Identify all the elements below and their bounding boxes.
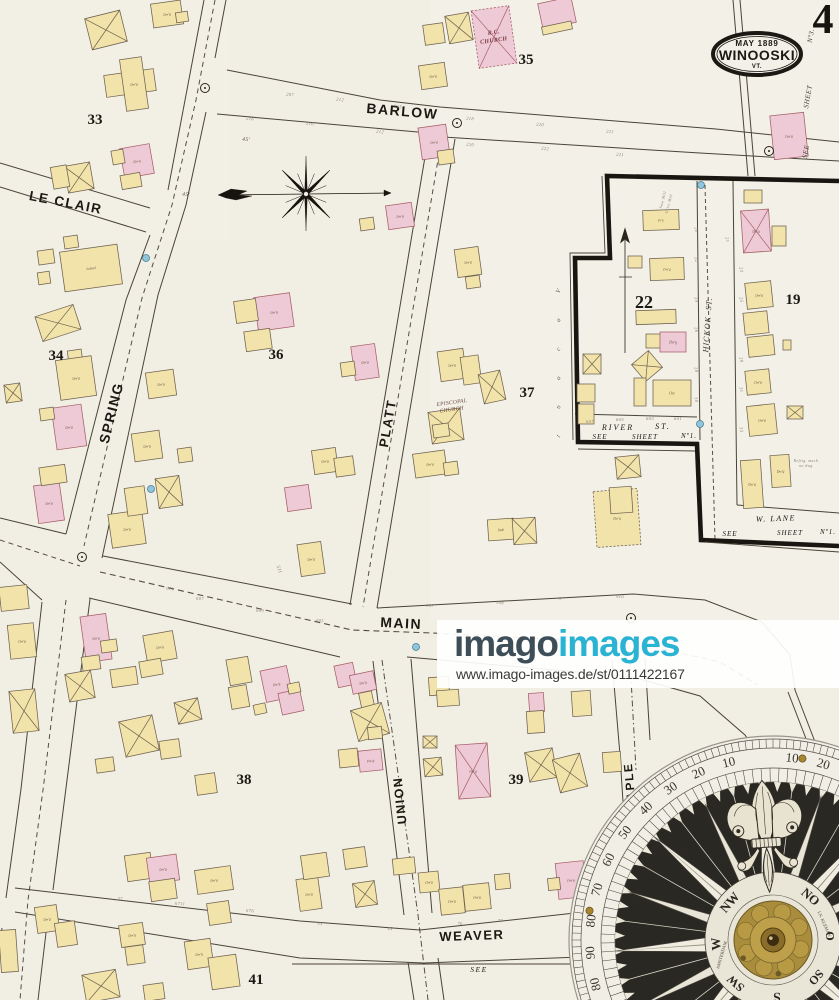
svg-text:212: 212 (336, 97, 345, 103)
svg-text:222: 222 (541, 146, 550, 152)
svg-text:676: 676 (246, 908, 255, 913)
svg-text:216: 216 (246, 116, 255, 122)
svg-text:Dw'g: Dw'g (668, 341, 677, 345)
svg-text:WEAVER: WEAVER (439, 927, 505, 944)
svg-text:605: 605 (616, 417, 624, 422)
svg-text:611: 611 (166, 586, 174, 592)
svg-text:80: 80 (582, 914, 598, 928)
svg-text:77: 77 (497, 918, 503, 923)
svg-text:SHEET: SHEET (632, 433, 658, 441)
svg-text:www.imago-images.de/st/0111422: www.imago-images.de/st/0111422167 (455, 666, 685, 682)
svg-text:210: 210 (306, 121, 315, 127)
svg-text:VT.: VT. (752, 64, 762, 70)
svg-text:220: 220 (536, 122, 545, 128)
svg-text:MAIN: MAIN (380, 614, 423, 632)
svg-text:609: 609 (256, 608, 265, 614)
svg-text:S: S (773, 990, 781, 1000)
svg-text:33: 33 (317, 921, 323, 926)
svg-text:207: 207 (286, 92, 295, 98)
svg-text:34: 34 (49, 348, 65, 364)
svg-text:45: 45 (387, 926, 393, 931)
svg-text:38: 38 (237, 772, 252, 788)
svg-text:212: 212 (376, 129, 385, 135)
svg-text:218: 218 (466, 116, 475, 122)
svg-text:31: 31 (739, 387, 745, 393)
svg-text:41: 41 (249, 972, 264, 988)
svg-text:908: 908 (496, 600, 505, 606)
svg-text:603: 603 (646, 416, 654, 421)
svg-text:WINOOSKI: WINOOSKI (719, 47, 795, 63)
svg-text:SEE: SEE (470, 965, 487, 974)
svg-text:37: 37 (117, 896, 123, 901)
svg-text:Nº1.: Nº1. (680, 432, 697, 440)
svg-text:45': 45' (242, 136, 251, 144)
svg-text:605: 605 (316, 618, 325, 624)
svg-text:Dw'g: Dw'g (776, 469, 785, 474)
svg-text:90: 90 (582, 946, 598, 960)
svg-text:907: 907 (426, 603, 435, 609)
svg-text:220: 220 (466, 142, 475, 148)
svg-text:601: 601 (674, 416, 682, 421)
svg-text:SEE: SEE (592, 433, 607, 441)
svg-text:221: 221 (606, 129, 614, 135)
svg-text:33: 33 (88, 112, 103, 128)
svg-text:45': 45' (182, 191, 191, 199)
svg-text:76: 76 (457, 921, 463, 926)
svg-text:no dwg: no dwg (799, 464, 812, 468)
svg-text:Pr'y: Pr'y (657, 218, 664, 222)
svg-text:21: 21 (725, 237, 731, 243)
svg-text:Stab: Stab (498, 528, 505, 532)
svg-text:10: 10 (785, 749, 799, 765)
svg-text:Ore: Ore (669, 392, 675, 396)
svg-text:4: 4 (813, 0, 834, 43)
svg-text:imagoimages: imagoimages (454, 623, 680, 664)
svg-text:607: 607 (196, 596, 205, 602)
svg-text:22: 22 (635, 292, 653, 312)
svg-text:Nº1.: Nº1. (819, 528, 836, 536)
svg-text:RIVER: RIVER (601, 423, 634, 432)
svg-text:SHEET: SHEET (777, 529, 803, 537)
svg-text:6711: 6711 (175, 901, 186, 907)
svg-text:221: 221 (616, 152, 624, 158)
svg-text:Dw'g: Dw'g (747, 482, 756, 487)
svg-text:910: 910 (616, 594, 625, 600)
svg-text:W. LANE: W. LANE (756, 513, 796, 523)
svg-text:215: 215 (394, 104, 403, 110)
svg-text:Dw'g: Dw'g (612, 516, 621, 521)
svg-text:36: 36 (269, 347, 285, 363)
svg-text:ST.: ST. (655, 422, 671, 431)
svg-text:Dw'g: Dw'g (751, 229, 760, 234)
svg-text:39: 39 (509, 772, 524, 788)
svg-text:607: 607 (586, 419, 594, 424)
svg-text:Refrig. mach: Refrig. mach (793, 459, 818, 463)
svg-text:Dw'g: Dw'g (468, 769, 477, 774)
svg-text:Dw'g: Dw'g (662, 267, 671, 271)
svg-text:37: 37 (520, 385, 536, 401)
svg-text:19: 19 (786, 292, 801, 308)
svg-text:35: 35 (519, 52, 534, 68)
svg-text:SEE: SEE (722, 530, 737, 538)
